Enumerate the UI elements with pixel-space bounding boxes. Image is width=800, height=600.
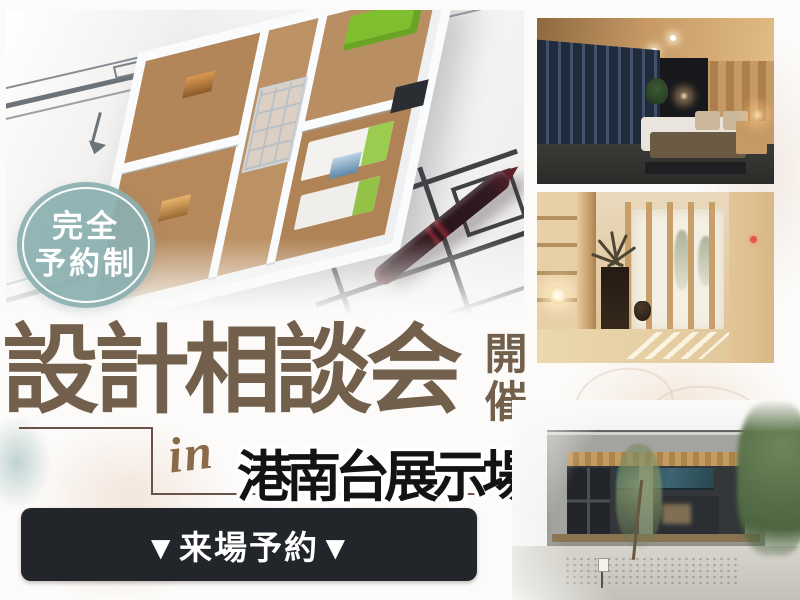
watercolor-blob-teal [0, 415, 52, 510]
house-exterior-photo [512, 400, 800, 600]
badge-line1: 完全 [52, 208, 120, 245]
event-title: 設計相談会 [2, 322, 502, 423]
potted-plant [646, 78, 668, 104]
reservation-badge: 完全 予約制 [17, 182, 155, 308]
in-script-word: in [165, 421, 217, 484]
interior-photo [537, 192, 774, 363]
frame-line-top [19, 427, 153, 429]
bedroom-photo [537, 18, 774, 184]
promo-banner: 完全 予約制 設計相談会 開催 in 港南台展示場 ▼来場予約▼ [0, 0, 800, 600]
bedside-lamp [751, 108, 765, 122]
right-wall [729, 192, 774, 363]
venue-name: 港南台展示場 [237, 432, 531, 512]
frame-line-vertical [151, 427, 153, 495]
visit-reservation-button[interactable]: ▼来場予約▼ [21, 508, 477, 581]
photo-white-wash [512, 400, 800, 600]
nightstand [736, 121, 767, 154]
round-floor-lamp [549, 286, 567, 304]
bed [641, 111, 745, 167]
badge-line2: 予約制 [35, 245, 137, 282]
cta-label: ▼来場予約▼ [144, 521, 353, 569]
